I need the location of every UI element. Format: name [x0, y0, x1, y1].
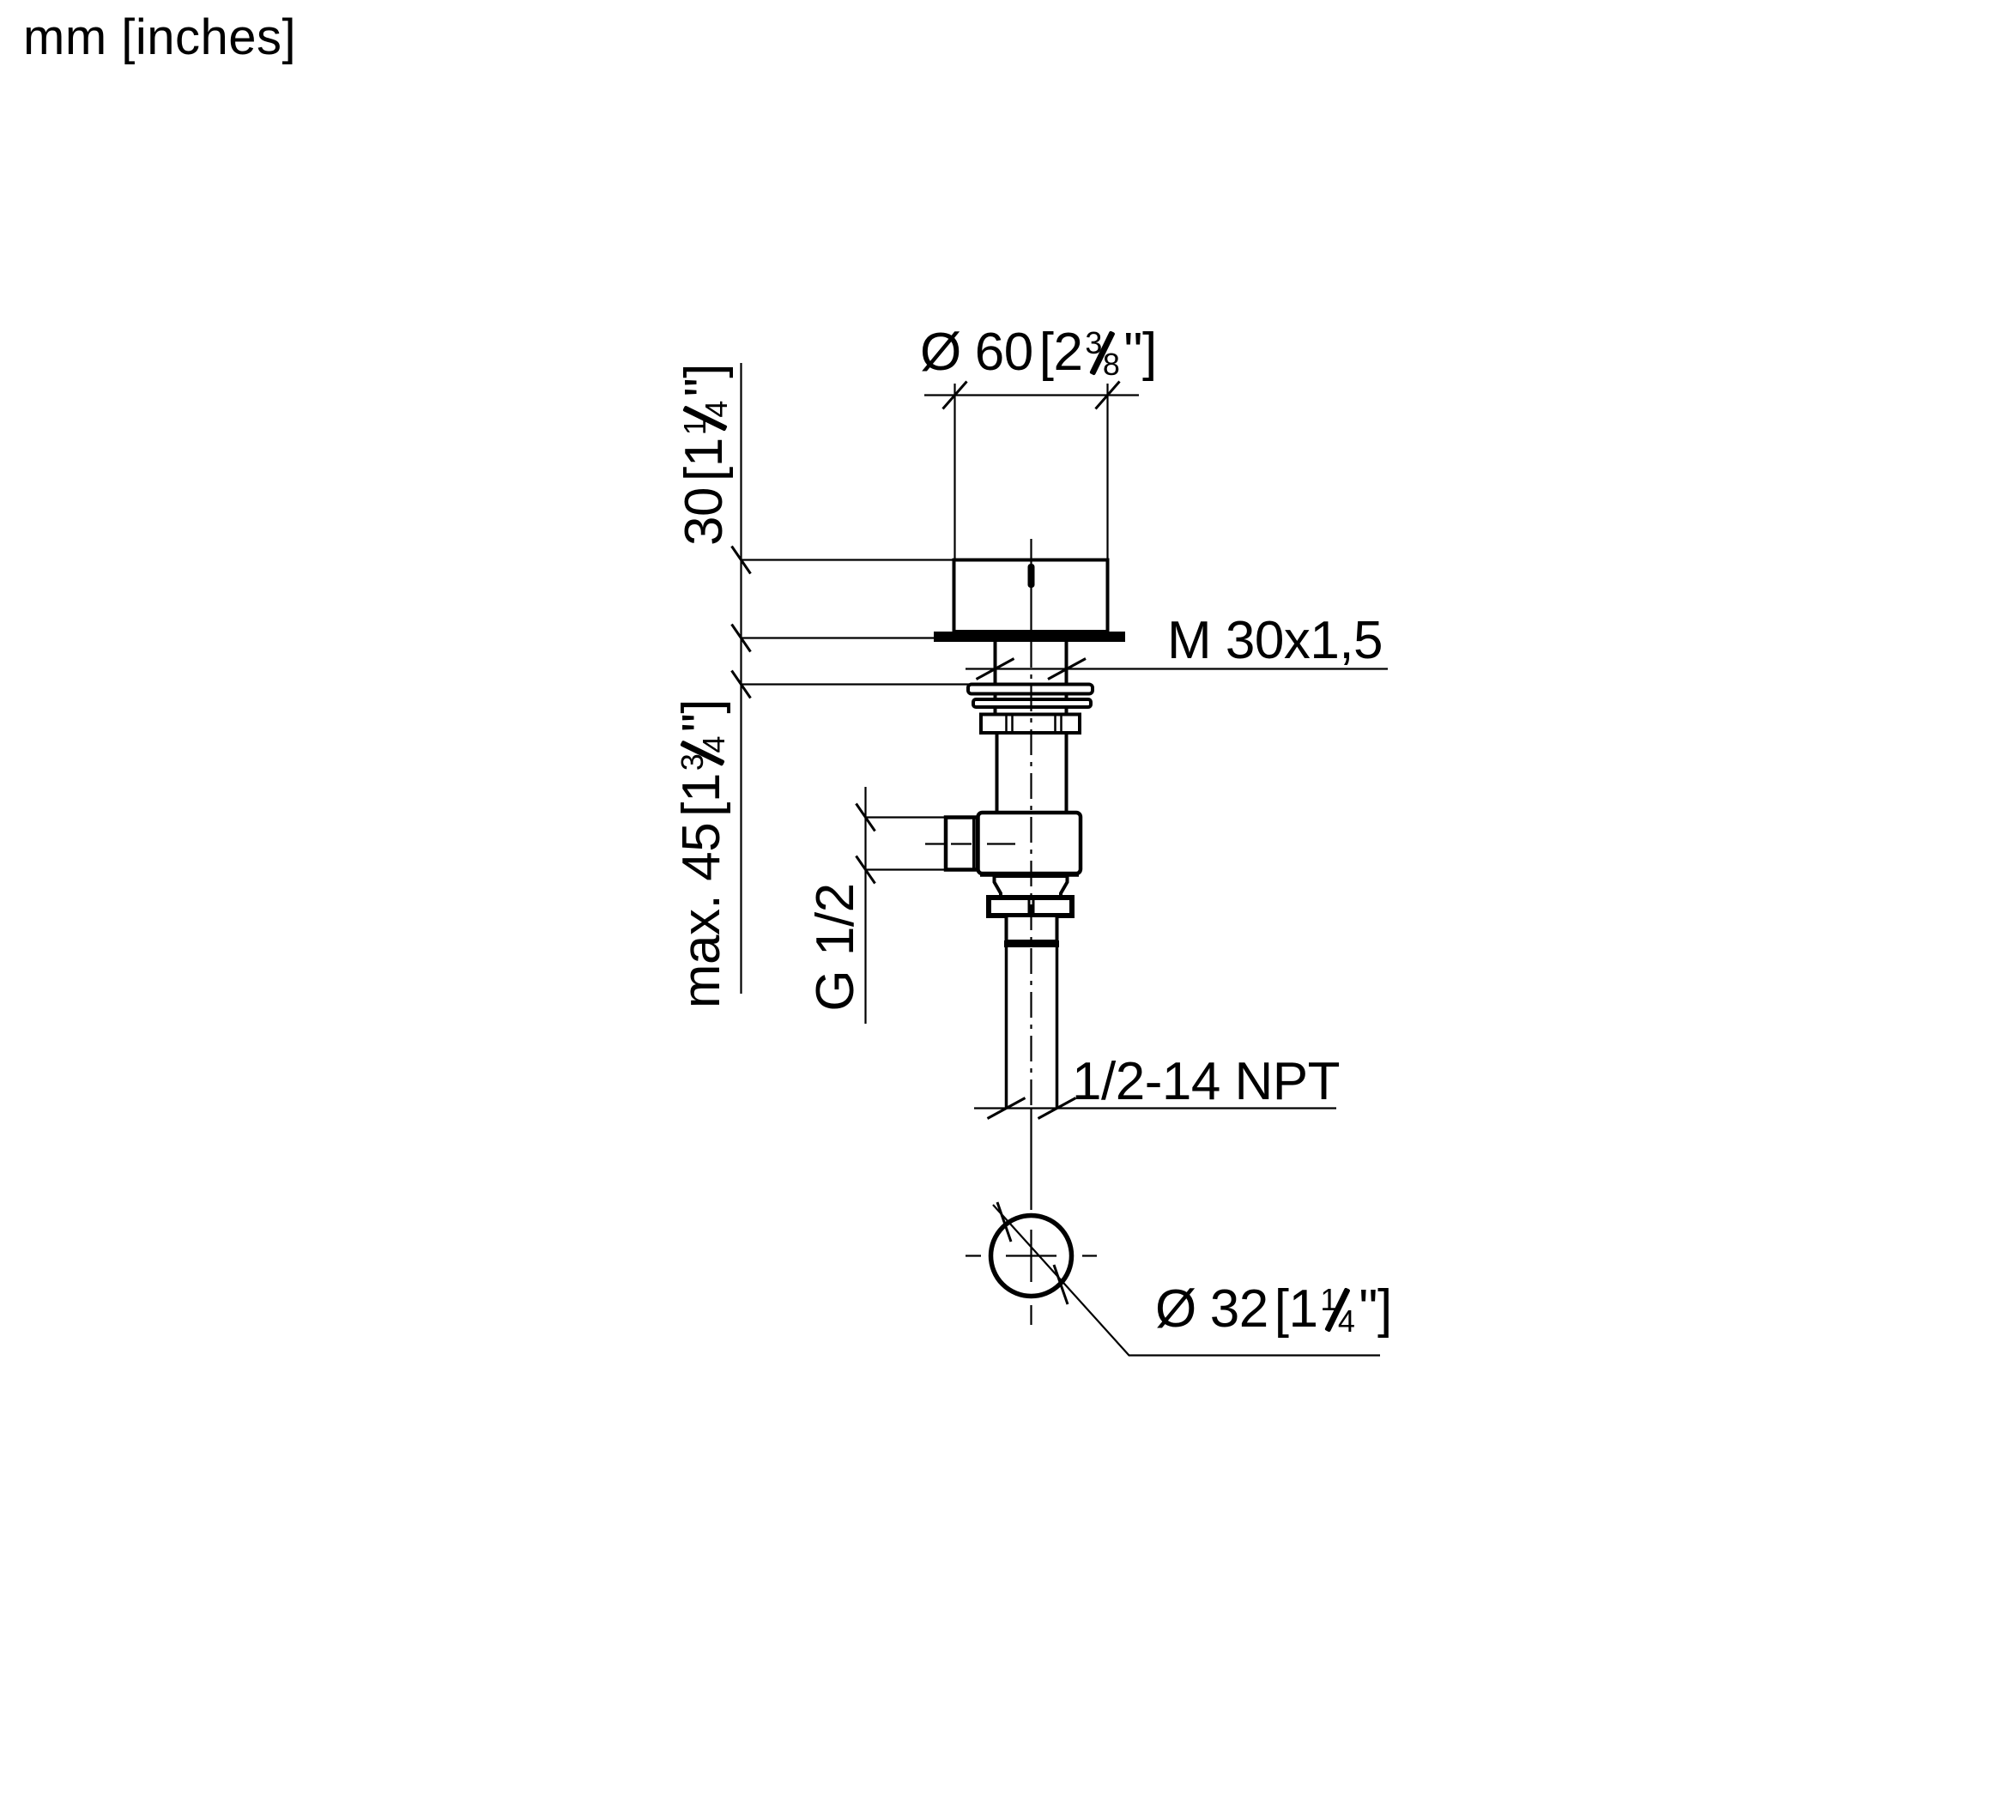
dim-mm-value: 45 [675, 823, 729, 881]
inch-mark: " [678, 378, 731, 397]
fitting-dimension-drawing [0, 0, 2016, 1820]
g12-dimension [857, 787, 946, 1024]
inch-fraction: 38 [1085, 326, 1119, 379]
inch-whole: 1 [1288, 1283, 1317, 1336]
dim-mm-value: 30 [678, 487, 731, 546]
dim-m30-label: M 30x1,5 [1167, 614, 1383, 668]
inch-whole: 2 [1053, 326, 1082, 379]
bracket: [ [678, 467, 731, 481]
inch-mark: " [1359, 1283, 1377, 1336]
spec-sheet-page: mm [inches] [0, 0, 2016, 1820]
bracket: [ [675, 802, 729, 817]
inch-fraction: 14 [678, 401, 731, 435]
diameter-symbol: Ø [920, 326, 961, 379]
bracket: ] [675, 699, 729, 714]
inch-whole: 1 [678, 438, 731, 467]
inch-fraction: 34 [675, 736, 729, 771]
bracket: [ [1039, 326, 1054, 379]
dim-dia32-label: Ø32[114"] [1155, 1283, 1392, 1336]
inch-mark: " [1123, 326, 1142, 379]
dia60-dimension [924, 382, 1139, 560]
dim-30-label: 30[114"] [678, 364, 731, 546]
bracket: [ [1274, 1283, 1289, 1336]
inch-fraction: 14 [1320, 1283, 1354, 1336]
inch-whole: 1 [675, 773, 729, 802]
dim-npt-label: 1/2-14 NPT [1072, 1055, 1340, 1109]
dim-mm-value: 32 [1210, 1283, 1268, 1336]
dim-dia60-label: Ø60[238"] [920, 326, 1157, 379]
bracket: ] [1142, 326, 1157, 379]
dim-mm-value: 60 [975, 326, 1033, 379]
bracket: ] [678, 364, 731, 378]
escutcheon-plate [934, 632, 1125, 642]
dim-prefix: max. [675, 895, 729, 1008]
dim-g12-label: G 1/2 [809, 883, 863, 1011]
dim-max45-label: max.45[134"] [675, 699, 729, 1008]
inch-mark: " [675, 714, 729, 733]
bracket: ] [1377, 1283, 1392, 1336]
diameter-symbol: Ø [1155, 1283, 1196, 1336]
